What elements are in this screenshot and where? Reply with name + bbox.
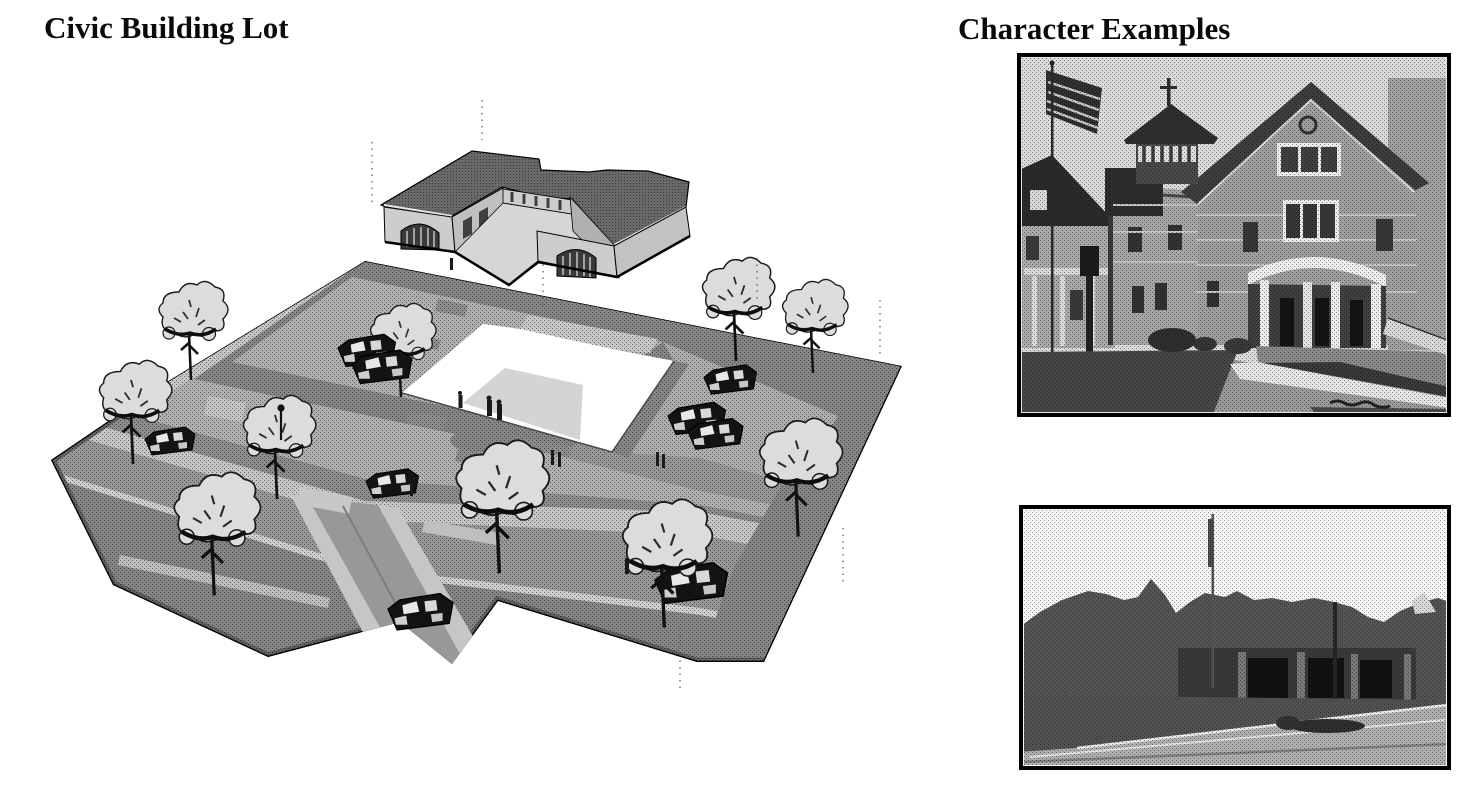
svg-text:Civic Building Lot: Civic Building Lot [44,10,289,45]
svg-text:Character Examples: Character Examples [958,11,1230,46]
